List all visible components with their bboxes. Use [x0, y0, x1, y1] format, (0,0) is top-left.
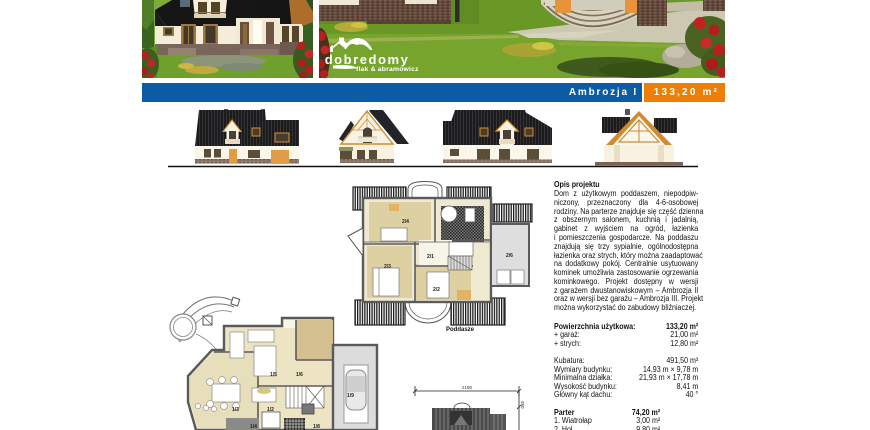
svg-text:1/2: 1/2: [267, 407, 274, 413]
svg-text:dobredomy: dobredomy: [325, 52, 410, 67]
svg-text:1/4: 1/4: [250, 424, 257, 430]
svg-text:flak & abramowicz: flak & abramowicz: [356, 66, 419, 73]
svg-text:2/4: 2/4: [402, 219, 409, 225]
svg-text:1/3: 1/3: [232, 407, 239, 413]
svg-text:1/5: 1/5: [270, 372, 277, 378]
svg-text:2/1: 2/1: [427, 254, 434, 260]
svg-text:2/2: 2/2: [433, 287, 440, 293]
svg-text:1/8: 1/8: [313, 424, 320, 430]
svg-text:980: 980: [520, 401, 525, 409]
svg-text:2190: 2190: [462, 385, 473, 390]
svg-text:2/3: 2/3: [384, 264, 391, 270]
svg-text:1/6: 1/6: [296, 372, 303, 378]
svg-text:2/6: 2/6: [506, 253, 513, 259]
svg-text:1/9: 1/9: [347, 393, 354, 399]
